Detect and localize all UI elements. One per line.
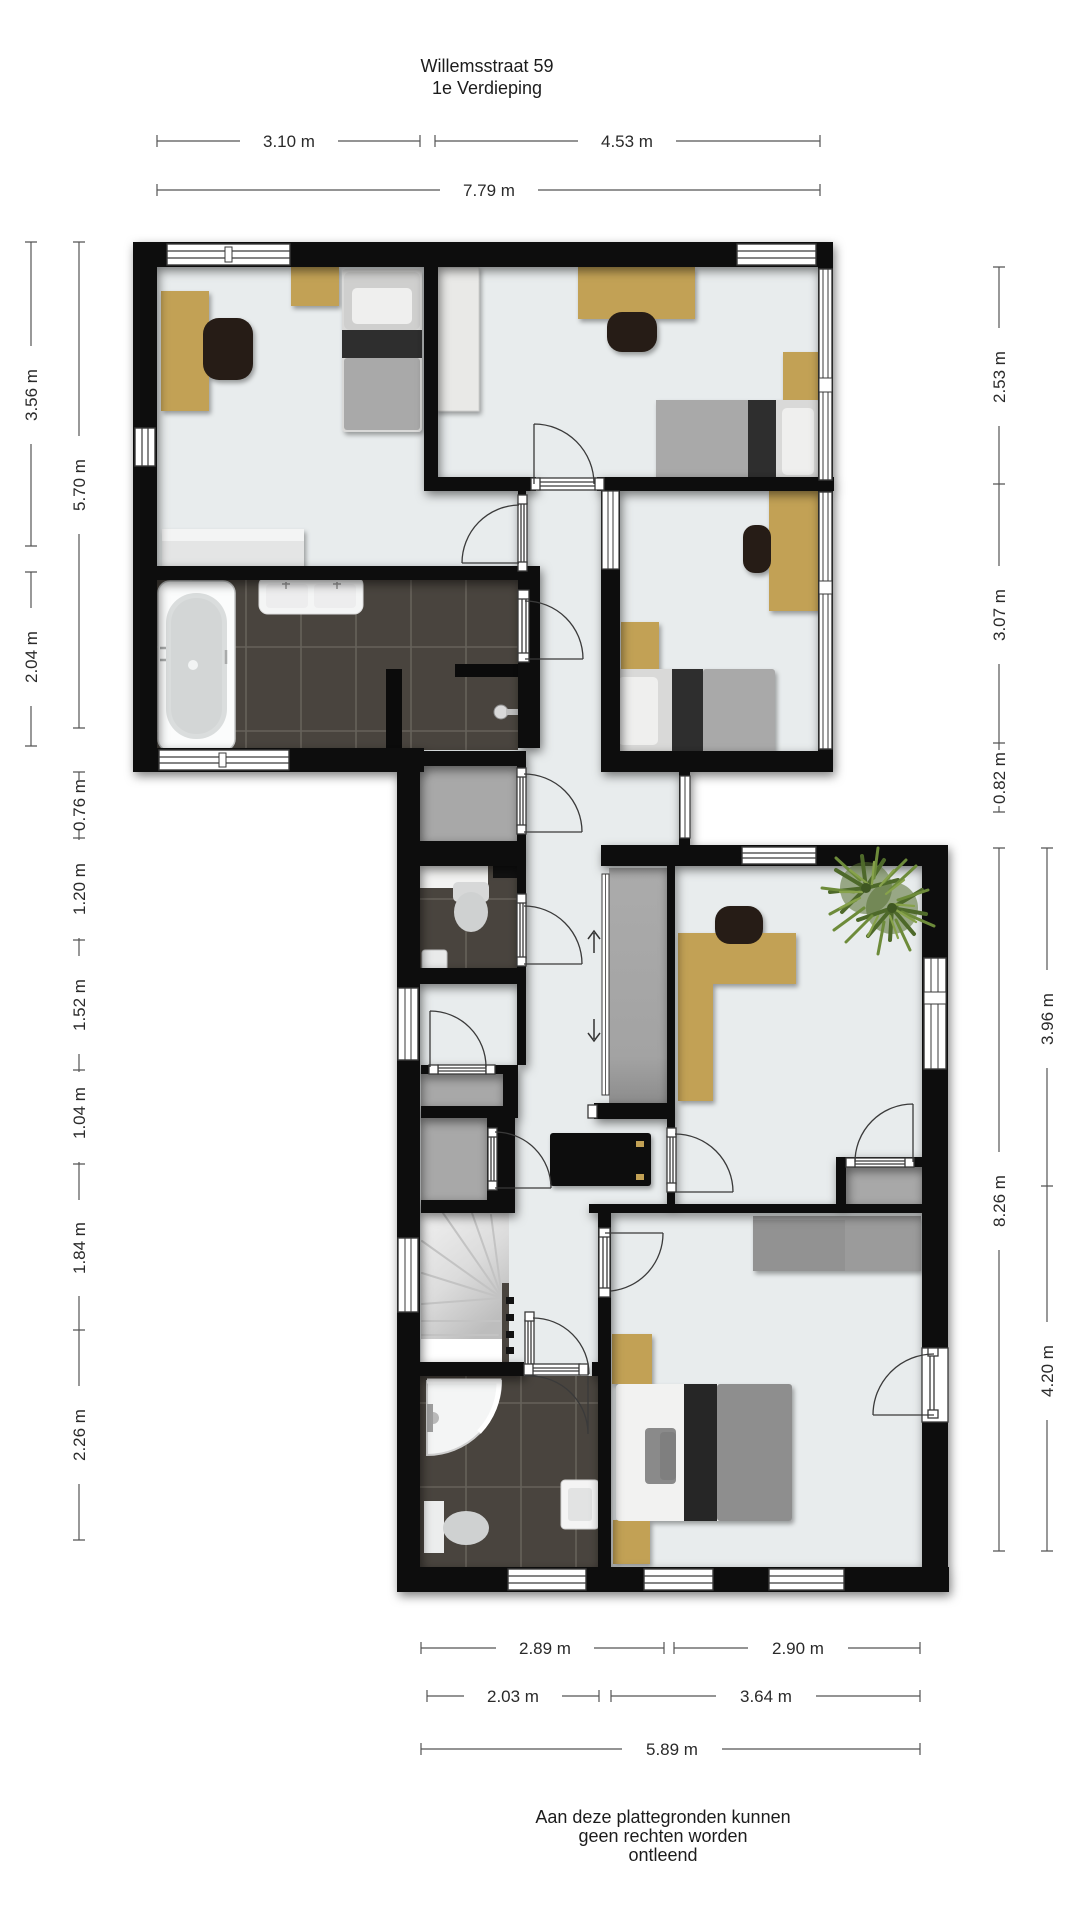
svg-text:4.20 m: 4.20 m [1038, 1345, 1057, 1397]
svg-text:1e Verdieping: 1e Verdieping [432, 78, 542, 98]
svg-text:3.64 m: 3.64 m [740, 1687, 792, 1706]
svg-text:0.76 m: 0.76 m [70, 779, 89, 831]
svg-text:5.89 m: 5.89 m [646, 1740, 698, 1759]
svg-text:2.26 m: 2.26 m [70, 1409, 89, 1461]
svg-text:7.79 m: 7.79 m [463, 181, 515, 200]
svg-text:3.96 m: 3.96 m [1038, 993, 1057, 1045]
svg-text:5.70 m: 5.70 m [70, 459, 89, 511]
svg-text:2.53 m: 2.53 m [990, 351, 1009, 403]
svg-text:1.52 m: 1.52 m [70, 979, 89, 1031]
svg-text:Willemsstraat 59: Willemsstraat 59 [420, 56, 553, 76]
svg-text:2.89 m: 2.89 m [519, 1639, 571, 1658]
svg-text:geen rechten worden: geen rechten worden [578, 1826, 747, 1846]
svg-text:1.20 m: 1.20 m [70, 863, 89, 915]
svg-text:2.90 m: 2.90 m [772, 1639, 824, 1658]
svg-text:1.84 m: 1.84 m [70, 1222, 89, 1274]
svg-text:4.53 m: 4.53 m [601, 132, 653, 151]
svg-text:8.26 m: 8.26 m [990, 1175, 1009, 1227]
svg-text:2.04 m: 2.04 m [22, 631, 41, 683]
svg-text:2.03 m: 2.03 m [487, 1687, 539, 1706]
svg-text:0.82 m: 0.82 m [990, 752, 1009, 804]
svg-text:ontleend: ontleend [628, 1845, 697, 1865]
svg-text:3.10 m: 3.10 m [263, 132, 315, 151]
svg-text:3.07 m: 3.07 m [990, 589, 1009, 641]
svg-text:Aan deze plattegronden kunnen: Aan deze plattegronden kunnen [535, 1807, 790, 1827]
svg-text:3.56 m: 3.56 m [22, 369, 41, 421]
svg-text:1.04 m: 1.04 m [70, 1087, 89, 1139]
